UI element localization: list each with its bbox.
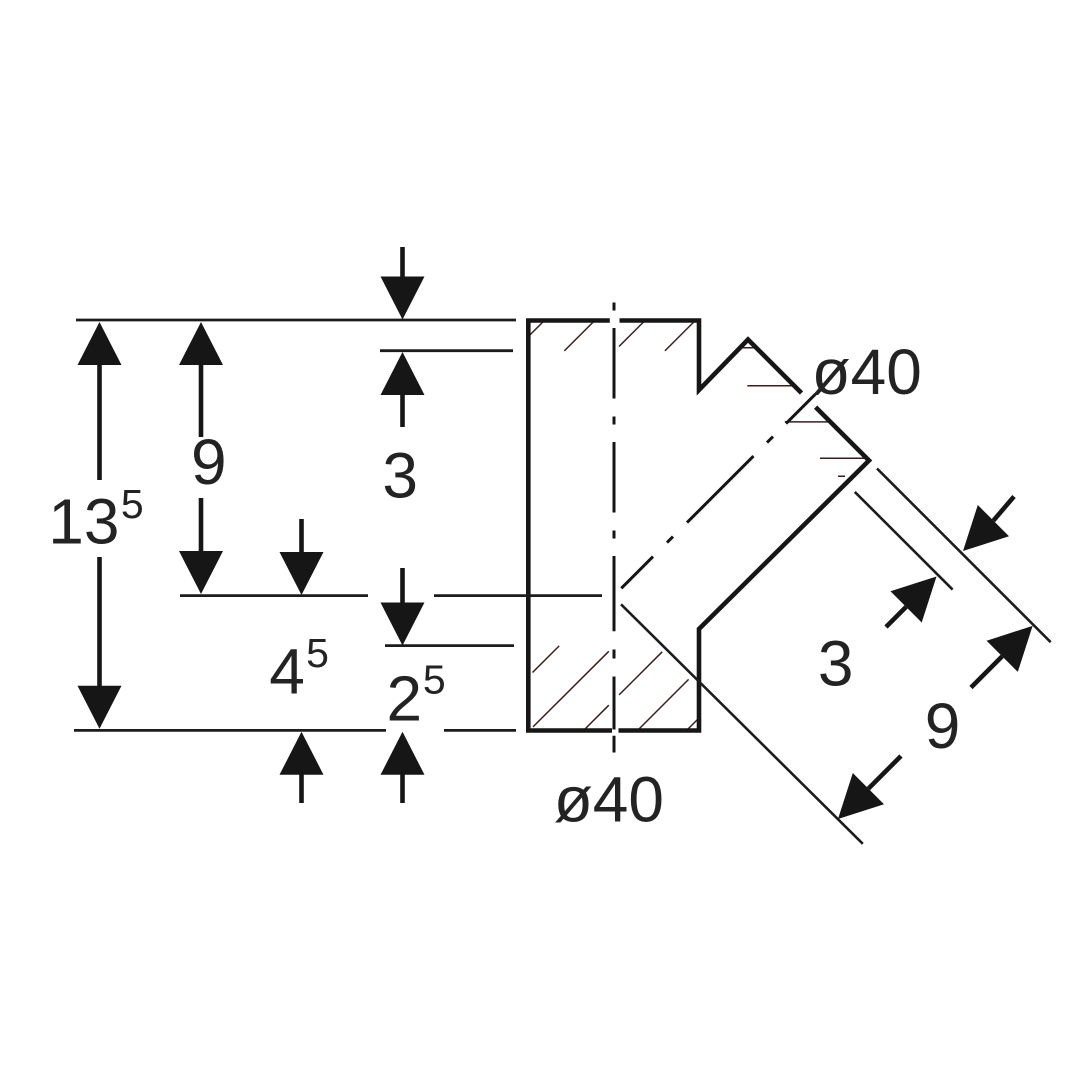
svg-text:ø40: ø40 (812, 336, 922, 408)
svg-text:3: 3 (382, 440, 418, 512)
svg-text:5: 5 (306, 630, 329, 676)
svg-text:2: 2 (387, 663, 423, 735)
svg-text:ø40: ø40 (554, 764, 664, 836)
svg-text:9: 9 (191, 426, 227, 498)
svg-text:13: 13 (48, 486, 119, 558)
svg-text:4: 4 (269, 635, 305, 707)
svg-text:5: 5 (121, 481, 144, 527)
svg-text:9: 9 (925, 690, 961, 762)
svg-text:3: 3 (818, 627, 854, 699)
svg-text:5: 5 (423, 657, 446, 703)
